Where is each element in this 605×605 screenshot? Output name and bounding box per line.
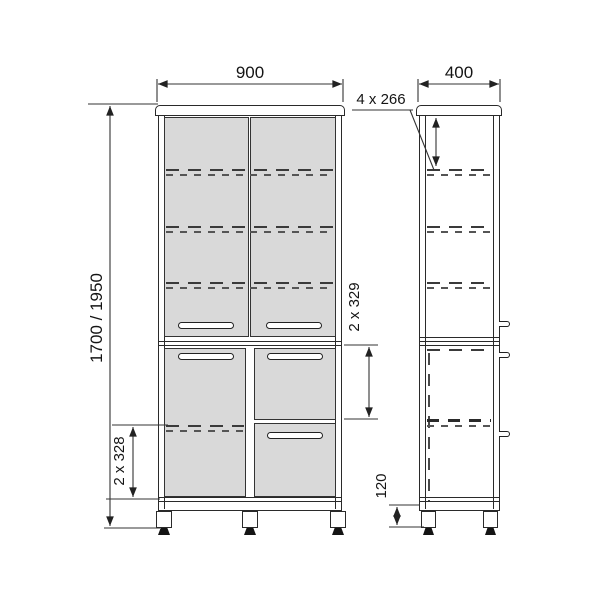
label-leg-height: 120 (372, 426, 392, 546)
label-drawer-heights: 2 x 329 (345, 247, 365, 367)
label-overall-height: 1700 / 1950 (87, 258, 107, 378)
label-front-width: 900 (210, 63, 290, 83)
label-side-depth: 400 (419, 63, 499, 83)
leader-266 (410, 110, 434, 170)
label-shelf-spacing-upper: 4 x 266 (350, 90, 412, 110)
label-shelf-spacing-lower: 2 x 328 (110, 401, 130, 521)
cabinet-technical-drawing: 900 400 4 x 266 1700 / 1950 2 x 329 2 x … (0, 0, 605, 605)
